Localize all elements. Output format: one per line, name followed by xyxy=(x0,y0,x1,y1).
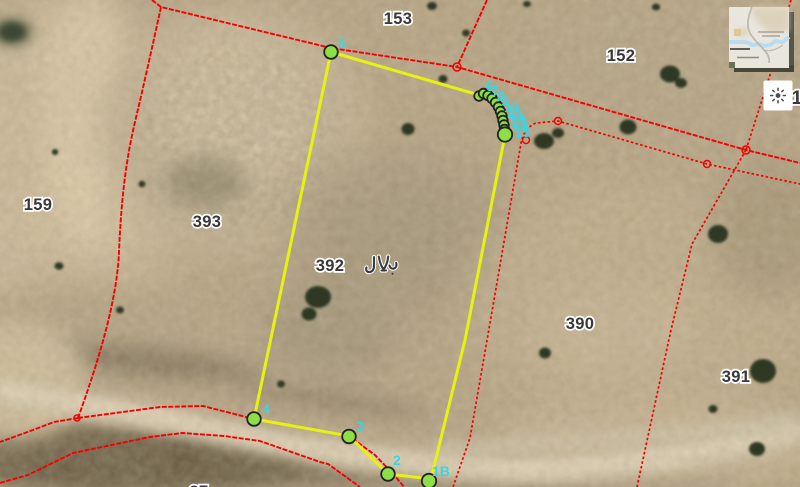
svg-text:5: 5 xyxy=(338,35,346,51)
svg-text:1B: 1B xyxy=(432,463,450,479)
svg-text:4: 4 xyxy=(262,401,270,417)
svg-text:1: 1 xyxy=(792,88,800,109)
svg-text:3: 3 xyxy=(356,418,364,434)
svg-text:15: 15 xyxy=(515,124,531,140)
svg-text:391: 391 xyxy=(722,368,750,386)
svg-text:153: 153 xyxy=(384,10,412,28)
svg-text:37: 37 xyxy=(190,483,209,487)
svg-text:392: 392 xyxy=(316,257,344,275)
svg-text:2: 2 xyxy=(393,452,401,468)
svg-text:393: 393 xyxy=(193,213,221,231)
svg-text:390: 390 xyxy=(566,315,594,333)
svg-text:159: 159 xyxy=(24,196,52,214)
svg-text:152: 152 xyxy=(607,47,635,65)
